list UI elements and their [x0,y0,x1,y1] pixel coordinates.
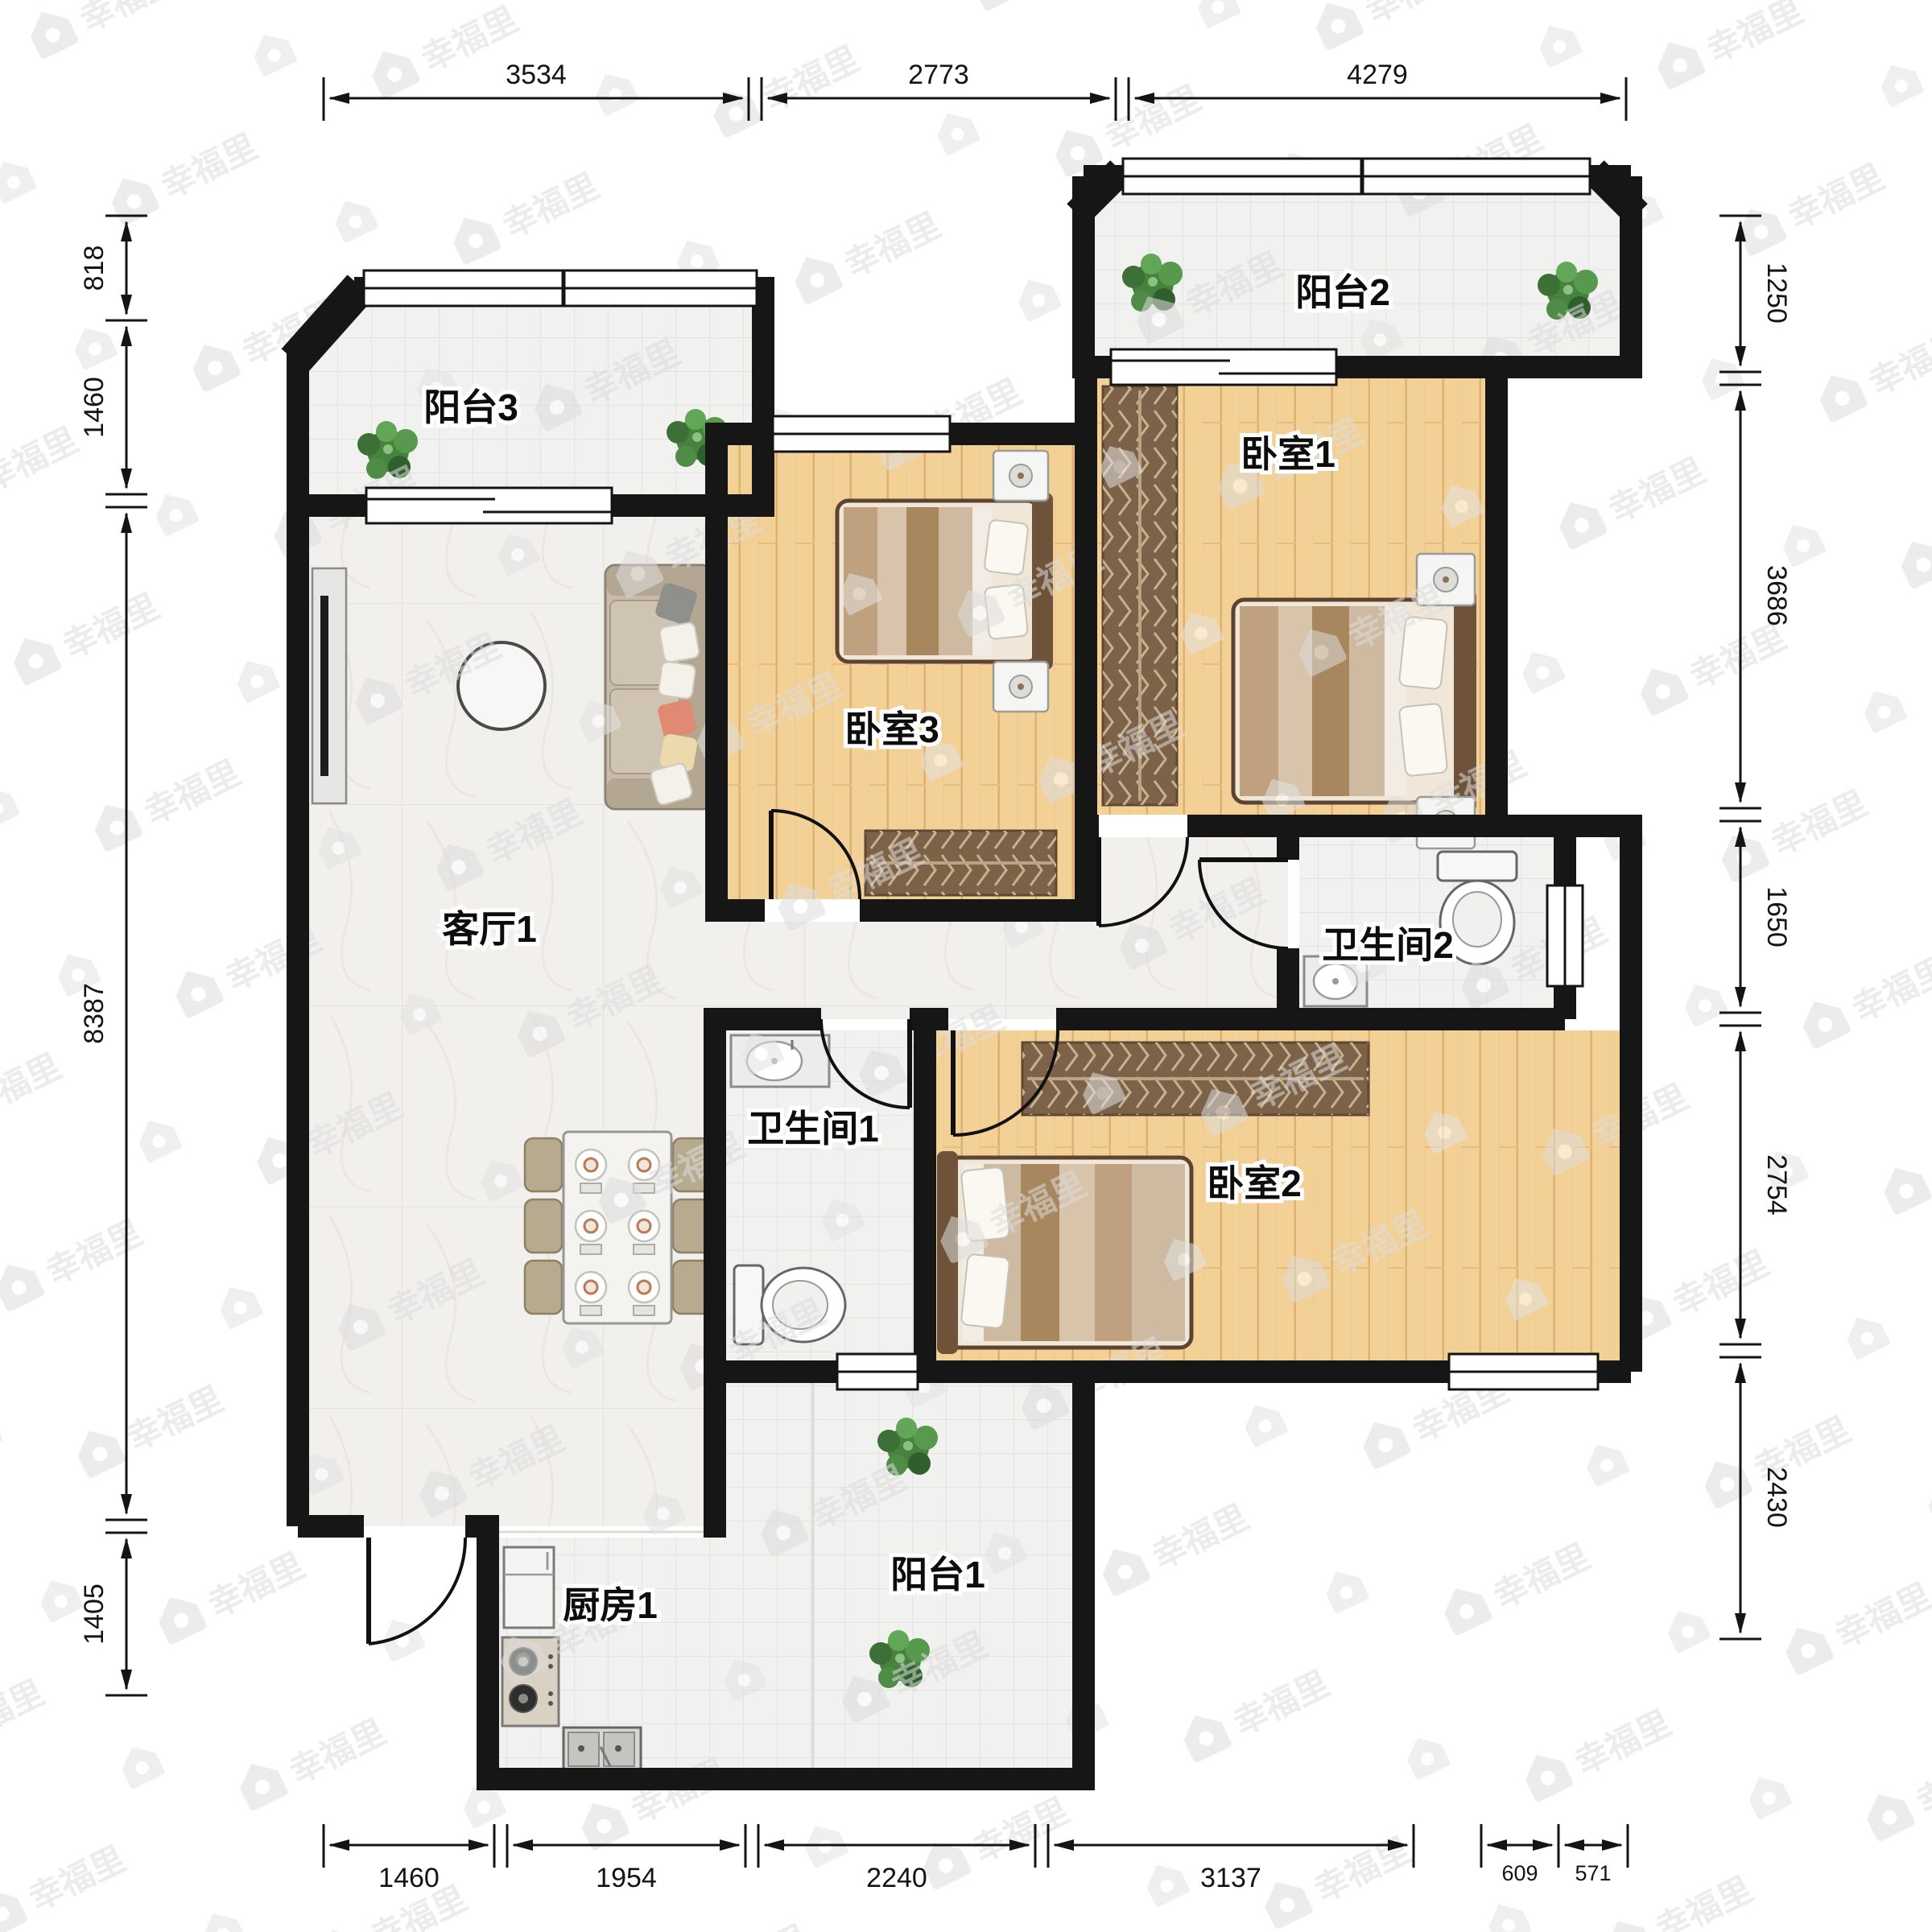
room-label-balcony2: 阳台2 [1295,271,1390,313]
floor-plan-canvas: 幸福里 [0,0,1932,1932]
dim-right-3: 2754 [1761,1154,1792,1216]
room-label-bath2: 卫生间2 [1322,924,1454,966]
balcony3-sliding-door [366,488,612,523]
dim-top-2: 4279 [1347,60,1408,90]
dim-right-0: 1250 [1761,262,1792,324]
dim-right-4: 2430 [1761,1467,1792,1528]
room-label-living: 客厅1 [442,908,537,950]
dim-bottom-1: 1954 [596,1863,657,1893]
dim-bottom-3: 3137 [1200,1863,1261,1893]
dim-right-1: 3686 [1761,565,1792,626]
room-label-balcony3: 阳台3 [423,386,518,428]
bedroom1-sliding-door [1111,349,1336,385]
dim-bottom-5: 571 [1575,1861,1611,1885]
dim-left-1: 1460 [79,377,109,438]
dim-top-1: 2773 [908,60,969,90]
room-label-bedroom2: 卧室2 [1207,1162,1302,1204]
bedroom2-window [1449,1354,1598,1389]
dim-top-0: 3534 [506,60,567,90]
dim-left-3: 1405 [79,1583,109,1645]
bath2-window [1547,885,1583,986]
room-label-bath1: 卫生间1 [747,1108,879,1150]
dim-right-2: 1650 [1761,886,1792,947]
floor-plan-page: 幸福里 [0,0,1932,1932]
dim-bottom-2: 2240 [866,1863,927,1893]
dim-left-2: 8387 [79,983,109,1044]
bath1-window [837,1354,918,1389]
room-label-balcony1: 阳台1 [890,1554,985,1596]
room-label-kitchen: 厨房1 [563,1584,658,1626]
dim-left-0: 818 [79,246,109,291]
room-label-bedroom1: 卧室1 [1241,433,1335,475]
dim-bottom-4: 609 [1501,1861,1538,1885]
dim-bottom-0: 1460 [378,1863,440,1893]
balcony3-window [364,270,757,306]
balcony2-window [1123,159,1590,194]
room-label-bedroom3: 卧室3 [844,708,939,750]
bedroom3-window [773,416,950,452]
